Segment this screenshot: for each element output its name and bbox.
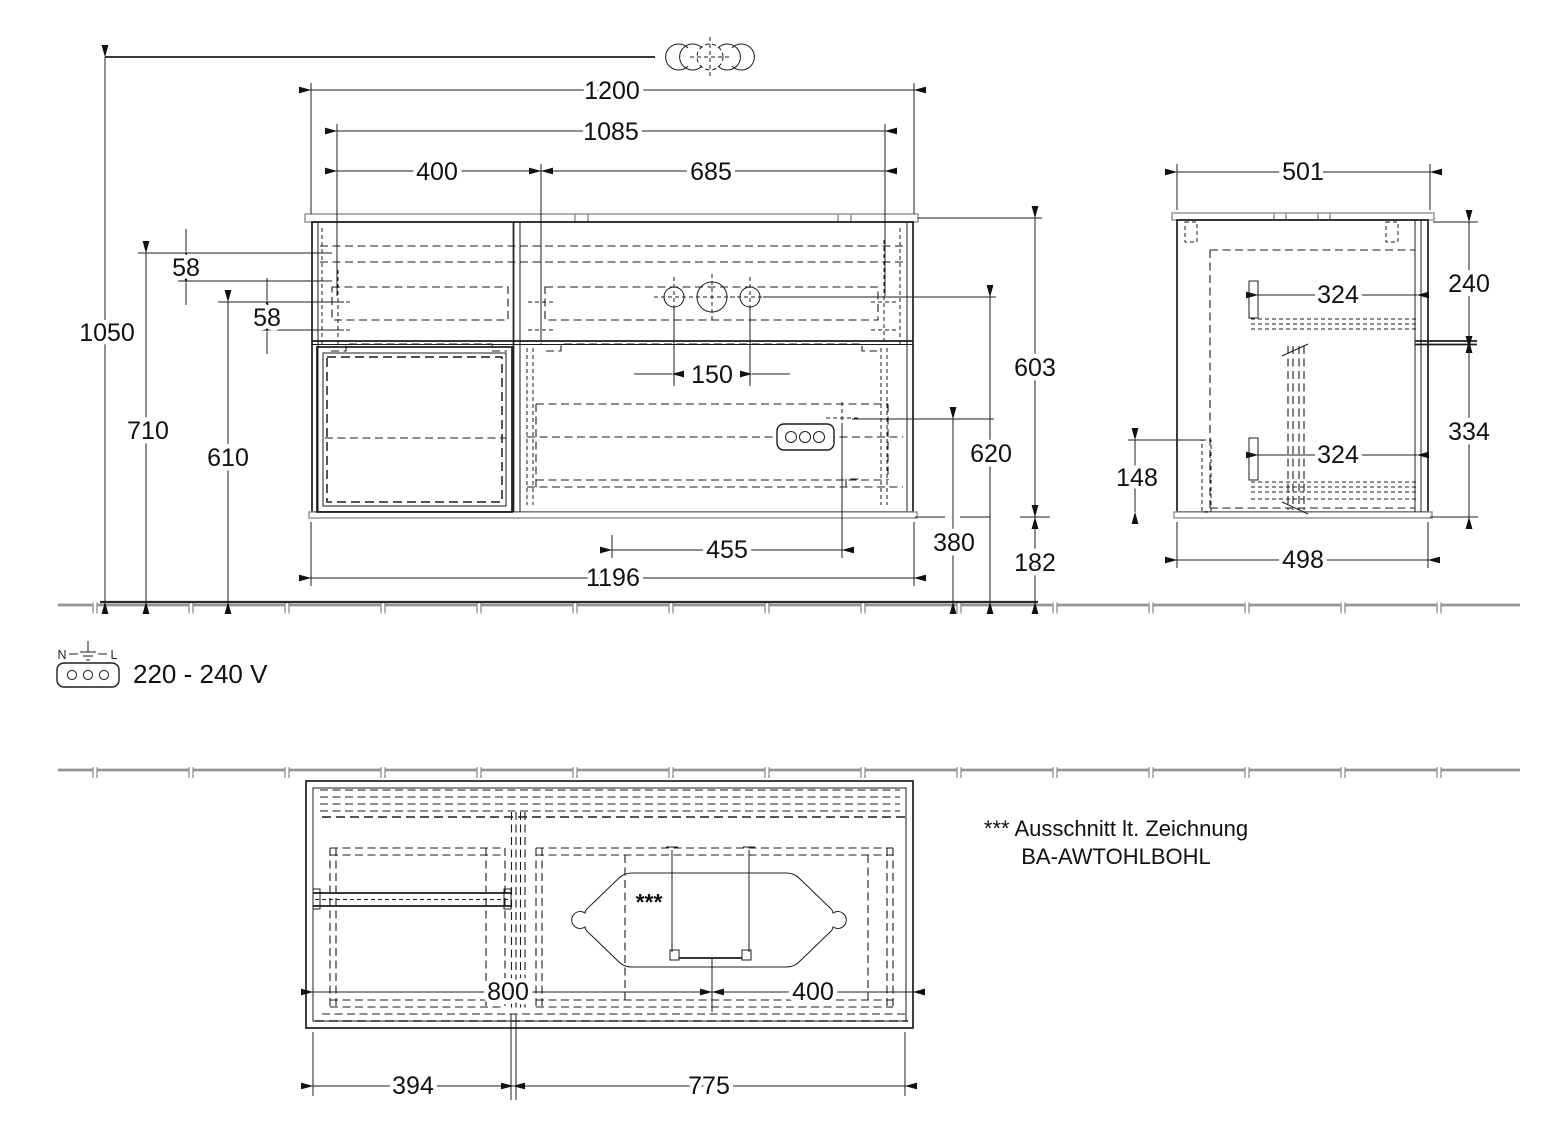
cabinet-base [309, 512, 917, 518]
dim-front-bottom-clearance: 182 [1014, 549, 1056, 577]
open-compartment [317, 347, 512, 512]
plug-line-label: L [111, 648, 118, 662]
side-view [1172, 213, 1477, 518]
top-right-drawer-hidden [536, 848, 893, 1007]
plug-neutral-label: N [57, 648, 66, 662]
dim-front-offset-lower: 58 [253, 304, 281, 332]
dim-front-offset-upper: 58 [172, 254, 200, 282]
tap-hole-icon [740, 287, 760, 307]
dim-front-height-fix-upper: 710 [127, 417, 169, 445]
dim-side-upper-section: 240 [1448, 270, 1490, 298]
floor-tiles-row [58, 602, 1520, 614]
wall-tiles-row [58, 767, 1520, 778]
dim-side-depth-body: 498 [1282, 546, 1324, 574]
dim-front-total-width: 1200 [584, 77, 640, 105]
dim-front-body-height: 603 [1014, 354, 1056, 382]
front-view [305, 214, 918, 518]
drawer-rail-bracket [1249, 438, 1258, 480]
vanity-dimension-drawing: 1200 1085 400 685 1050 710 610 58 58 150… [0, 0, 1560, 1123]
tap-hole-options-icon [105, 37, 754, 77]
dim-top-drain-from-left: 800 [487, 978, 529, 1006]
technical-drawing-page: 1200 1085 400 685 1050 710 610 58 58 150… [0, 0, 1560, 1123]
dim-top-drain-from-right: 400 [792, 978, 834, 1006]
dim-top-right-section: 775 [688, 1072, 730, 1100]
dim-side-depth-top: 501 [1282, 158, 1324, 186]
dim-front-outlet-height: 620 [970, 440, 1012, 468]
dim-front-height-fix-lower: 610 [207, 444, 249, 472]
mounting-bracket-hidden [1185, 222, 1197, 242]
dim-side-rail-lower: 324 [1317, 441, 1359, 469]
top-dimensions: 800 400 394 775 [313, 958, 913, 1100]
left-drawer-hidden [332, 287, 508, 320]
side-countertop [1172, 213, 1434, 220]
dim-front-tap-spacing: 150 [691, 361, 733, 389]
dim-side-recess-height: 148 [1116, 464, 1158, 492]
dim-top-left-section: 394 [392, 1072, 434, 1100]
front-dimensions: 1200 1085 400 685 1050 710 610 58 58 150… [79, 57, 1056, 602]
dim-front-body-width: 1196 [586, 564, 640, 592]
voltage-label: 220 - 240 V [133, 659, 268, 689]
cutout-note-line2: BA-AWTOHLBOHL [1021, 844, 1210, 869]
dim-front-height-top: 1050 [79, 319, 135, 347]
plug-socket-icon [57, 663, 119, 687]
dim-front-trap-offset: 455 [706, 536, 748, 564]
cutout-note: *** Ausschnitt lt. Zeichnung BA-AWTOHLBO… [984, 816, 1248, 869]
side-body [1177, 220, 1428, 512]
top-left-drawer-hidden [313, 848, 511, 1007]
dim-front-fixing-width: 1085 [583, 118, 639, 146]
dim-front-socket-height: 380 [933, 529, 975, 557]
tap-hole-icon [664, 287, 684, 307]
drawer-rail-bracket [1249, 281, 1258, 318]
cutout-marker: *** [636, 889, 663, 915]
countertop [305, 214, 918, 222]
dim-front-fixing-left: 400 [416, 158, 458, 186]
tap-holes [654, 274, 770, 320]
dim-side-rail-upper: 324 [1317, 281, 1359, 309]
dim-front-fixing-right: 685 [690, 158, 732, 186]
mounting-bracket-hidden [1386, 222, 1398, 242]
cabinet-body [312, 222, 913, 512]
earth-symbol-icon [80, 641, 96, 660]
fixing-points [325, 240, 897, 345]
basin-cutout: *** [572, 847, 847, 967]
dim-side-lower-section: 334 [1448, 418, 1490, 446]
power-connection: N L 220 - 240 V [57, 641, 268, 689]
cutout-note-line1: *** Ausschnitt lt. Zeichnung [984, 816, 1248, 841]
power-socket-icon [777, 402, 858, 450]
